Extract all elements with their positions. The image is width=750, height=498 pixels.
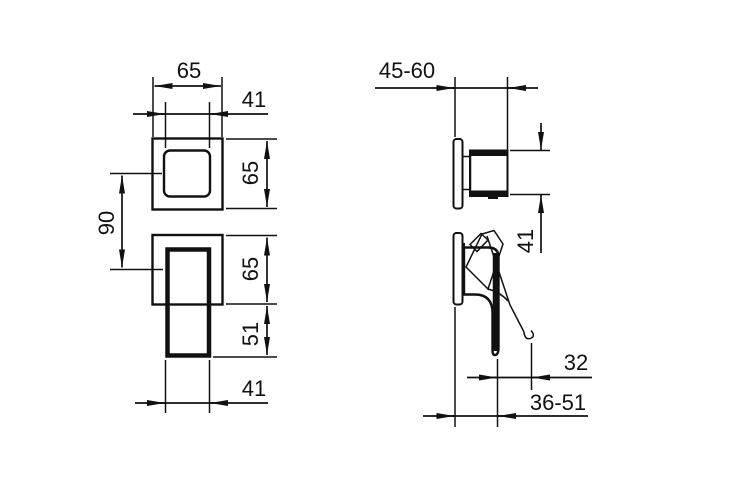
side-knob-body [470, 151, 508, 197]
front-view [153, 139, 223, 356]
technical-drawing-page: 65 41 65 90 65 51 41 [0, 0, 750, 498]
side-lower-plate [454, 233, 463, 305]
dim-label-upper-plate-height: 65 [238, 161, 263, 185]
front-knob [164, 151, 210, 197]
open-lever-end-cap [470, 234, 488, 252]
dim-label-lever-width: 41 [242, 376, 266, 401]
dim-label-lever-travel: 32 [564, 350, 588, 375]
dim-label-lever-overhang: 51 [238, 322, 263, 346]
dim-label-body-depth: 36-51 [530, 390, 586, 415]
dim-label-center-distance: 90 [94, 211, 119, 235]
dim-front-lower-plate-height: 65 [226, 236, 277, 305]
dim-label-knob-height: 41 [513, 229, 538, 253]
dim-label-lower-plate-height: 65 [238, 257, 263, 281]
dim-side-wall-depth: 45-60 [375, 58, 538, 150]
open-lever-grip-tip-hook [524, 331, 533, 339]
dim-label-plate-width: 65 [177, 58, 201, 83]
dim-front-plate-width: 65 [153, 58, 222, 137]
dim-label-knob-width: 41 [242, 87, 266, 112]
dim-side-knob-height: 41 [510, 123, 550, 253]
side-upper-plate [454, 139, 463, 209]
dim-front-lever-width: 41 [135, 360, 268, 413]
technical-drawing-canvas: 65 41 65 90 65 51 41 [0, 0, 750, 498]
side-knob-nub [488, 196, 498, 199]
dim-label-wall-depth: 45-60 [379, 58, 435, 83]
front-lever-handle [168, 250, 210, 356]
dim-front-upper-plate-height: 65 [226, 139, 277, 209]
dim-front-lever-overhang: 51 [213, 306, 277, 357]
